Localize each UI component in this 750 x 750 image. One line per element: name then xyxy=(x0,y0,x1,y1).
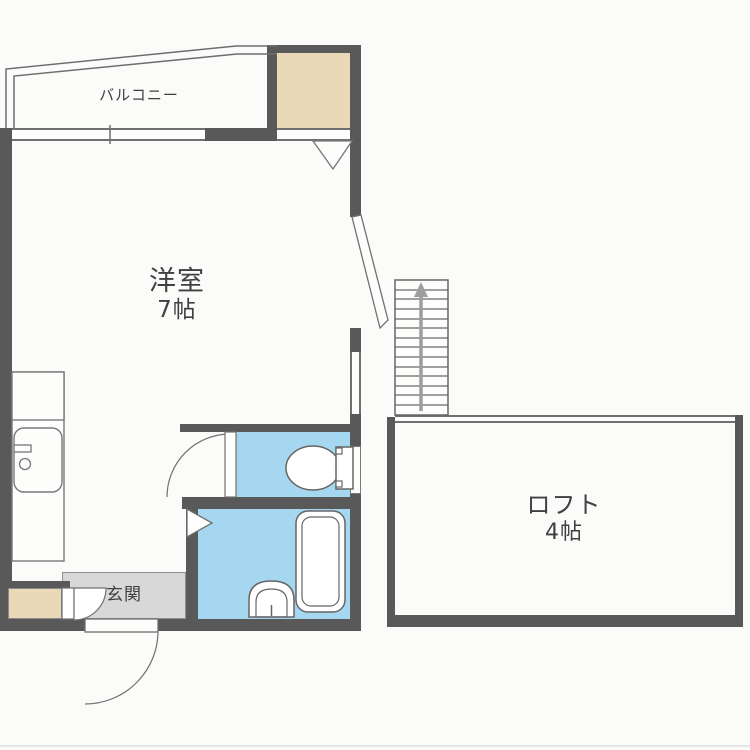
closet-folding-door-icon xyxy=(313,141,352,169)
main-room-size: 7帖 xyxy=(106,297,248,323)
kitchen-faucet-handle xyxy=(14,445,31,452)
toilet-door-swing xyxy=(167,434,230,497)
loft-name: ロフト xyxy=(494,492,634,520)
entrance-door-swing xyxy=(85,631,158,704)
main-room-label: 洋室 7帖 xyxy=(106,266,248,323)
toilet-tank-notch-top xyxy=(336,448,342,454)
bathroom-door-icon xyxy=(187,509,212,537)
floorplan: バルコニー 洋室 7帖 ロフト 4帖 玄関 xyxy=(0,0,750,750)
toilet-bowl xyxy=(286,446,340,490)
entrance-label: 玄関 xyxy=(96,586,152,606)
bottom-edge-line xyxy=(0,745,750,747)
loft-label: ロフト 4帖 xyxy=(494,492,634,545)
entrance-inner-door-leaf xyxy=(62,588,74,619)
fixtures-layer xyxy=(0,0,750,750)
entrance-door-leaf xyxy=(85,619,158,632)
kitchen-faucet xyxy=(20,459,31,470)
main-room-name: 洋室 xyxy=(106,266,248,297)
open-door-leaf xyxy=(352,215,388,328)
loft-size: 4帖 xyxy=(494,520,634,545)
toilet-door-leaf xyxy=(225,432,236,497)
bathtub-outer xyxy=(296,511,345,612)
kitchen-stove-top xyxy=(12,372,64,420)
balcony-label: バルコニー xyxy=(79,87,199,104)
toilet-tank-notch-bottom xyxy=(336,481,342,487)
